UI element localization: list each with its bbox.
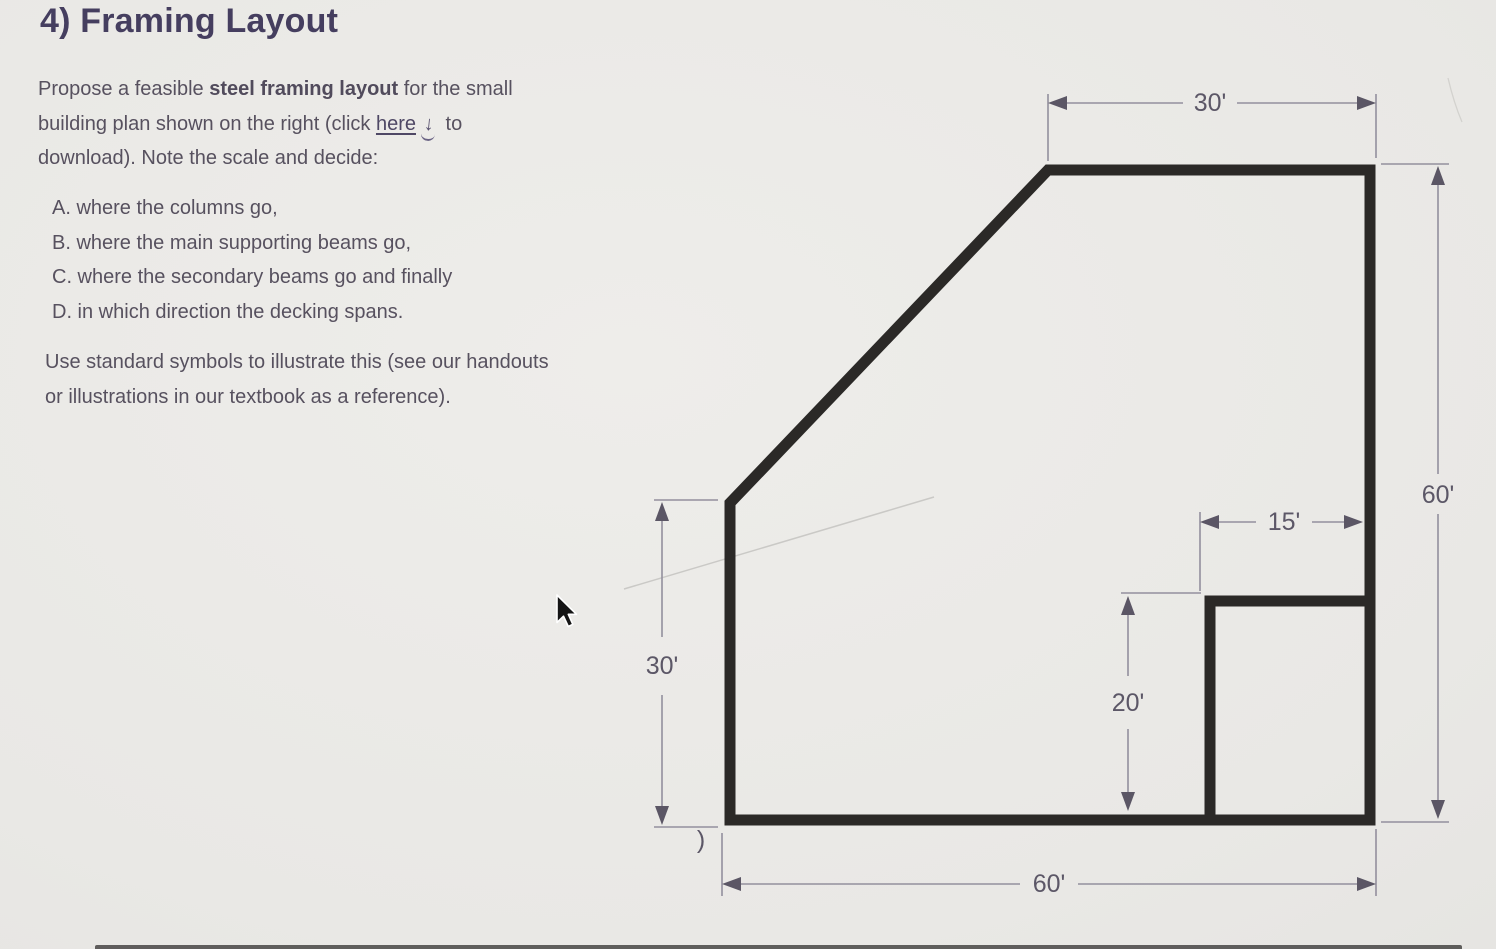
arrowhead-down-icon (1431, 800, 1445, 819)
scratch-artifact (624, 497, 934, 589)
dim-label-top-width: 30' (1194, 89, 1227, 117)
dim-label-left-height: 30' (646, 652, 679, 680)
dim-label-right-height: 60' (1422, 481, 1455, 509)
arrowhead-right-icon (1344, 515, 1363, 529)
arrowhead-left-icon (1048, 96, 1067, 110)
bottom-edge-bar (95, 945, 1462, 949)
building-perimeter-wall (730, 170, 1370, 820)
arrowhead-left-icon (722, 877, 741, 891)
building-outline (730, 170, 1370, 820)
dim-label-bottom-width: 60' (1033, 870, 1066, 898)
arrowhead-right-icon (1357, 96, 1376, 110)
arrowhead-down-icon (1121, 792, 1135, 811)
dimension-lines (654, 94, 1449, 896)
arrowhead-up-icon (1431, 166, 1445, 185)
arrowhead-up-icon (1121, 596, 1135, 615)
arrowhead-left-icon (1200, 515, 1219, 529)
scratch-artifact (1448, 78, 1462, 122)
building-notch-wall (1210, 601, 1370, 820)
arrowhead-down-icon (655, 806, 669, 825)
mouse-cursor-icon (557, 595, 577, 627)
stray-mark: ) (697, 826, 705, 854)
assignment-page: 4) Framing Layout Propose a feasible ste… (0, 0, 1496, 949)
building-plan-drawing: 30' 60' 60' 30' 15' 20' ) (0, 0, 1496, 949)
dim-label-notch-height: 20' (1112, 689, 1145, 717)
arrowhead-right-icon (1357, 877, 1376, 891)
arrowhead-up-icon (655, 502, 669, 521)
dim-label-notch-width: 15' (1268, 508, 1301, 536)
